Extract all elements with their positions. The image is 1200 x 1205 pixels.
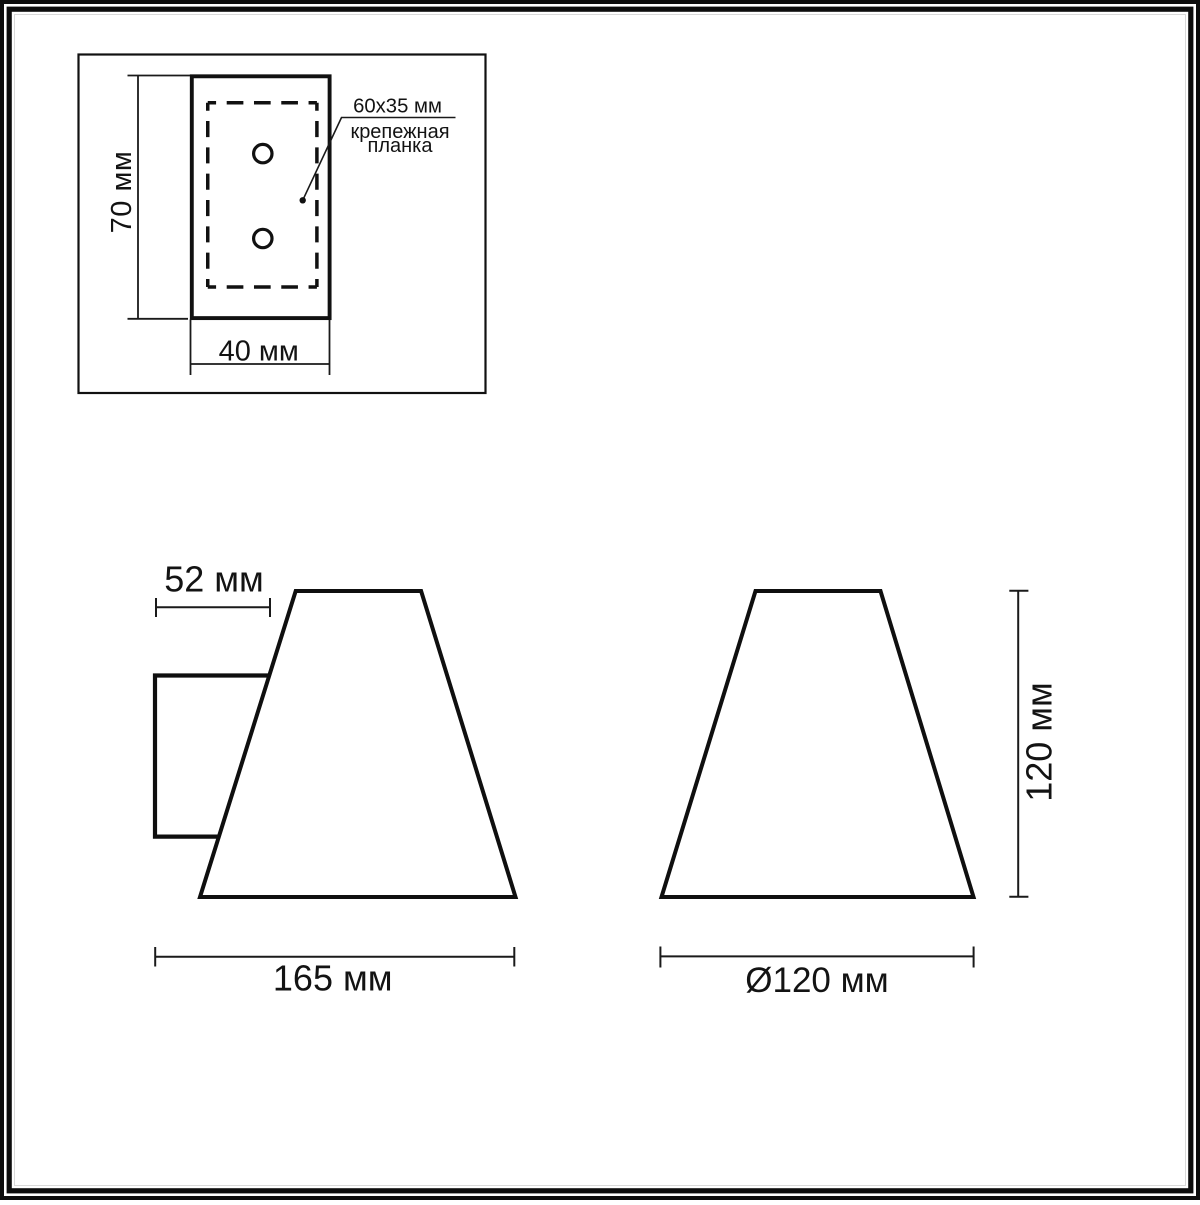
svg-text:70 мм: 70 мм — [106, 151, 138, 234]
svg-text:планка: планка — [368, 135, 434, 157]
svg-text:60x35 мм: 60x35 мм — [353, 95, 442, 117]
svg-text:40 мм: 40 мм — [219, 335, 299, 367]
svg-text:Ø120 мм: Ø120 мм — [745, 961, 888, 1000]
svg-text:165 мм: 165 мм — [273, 958, 393, 999]
svg-text:52 мм: 52 мм — [164, 559, 264, 600]
svg-text:120 мм: 120 мм — [1019, 682, 1060, 802]
